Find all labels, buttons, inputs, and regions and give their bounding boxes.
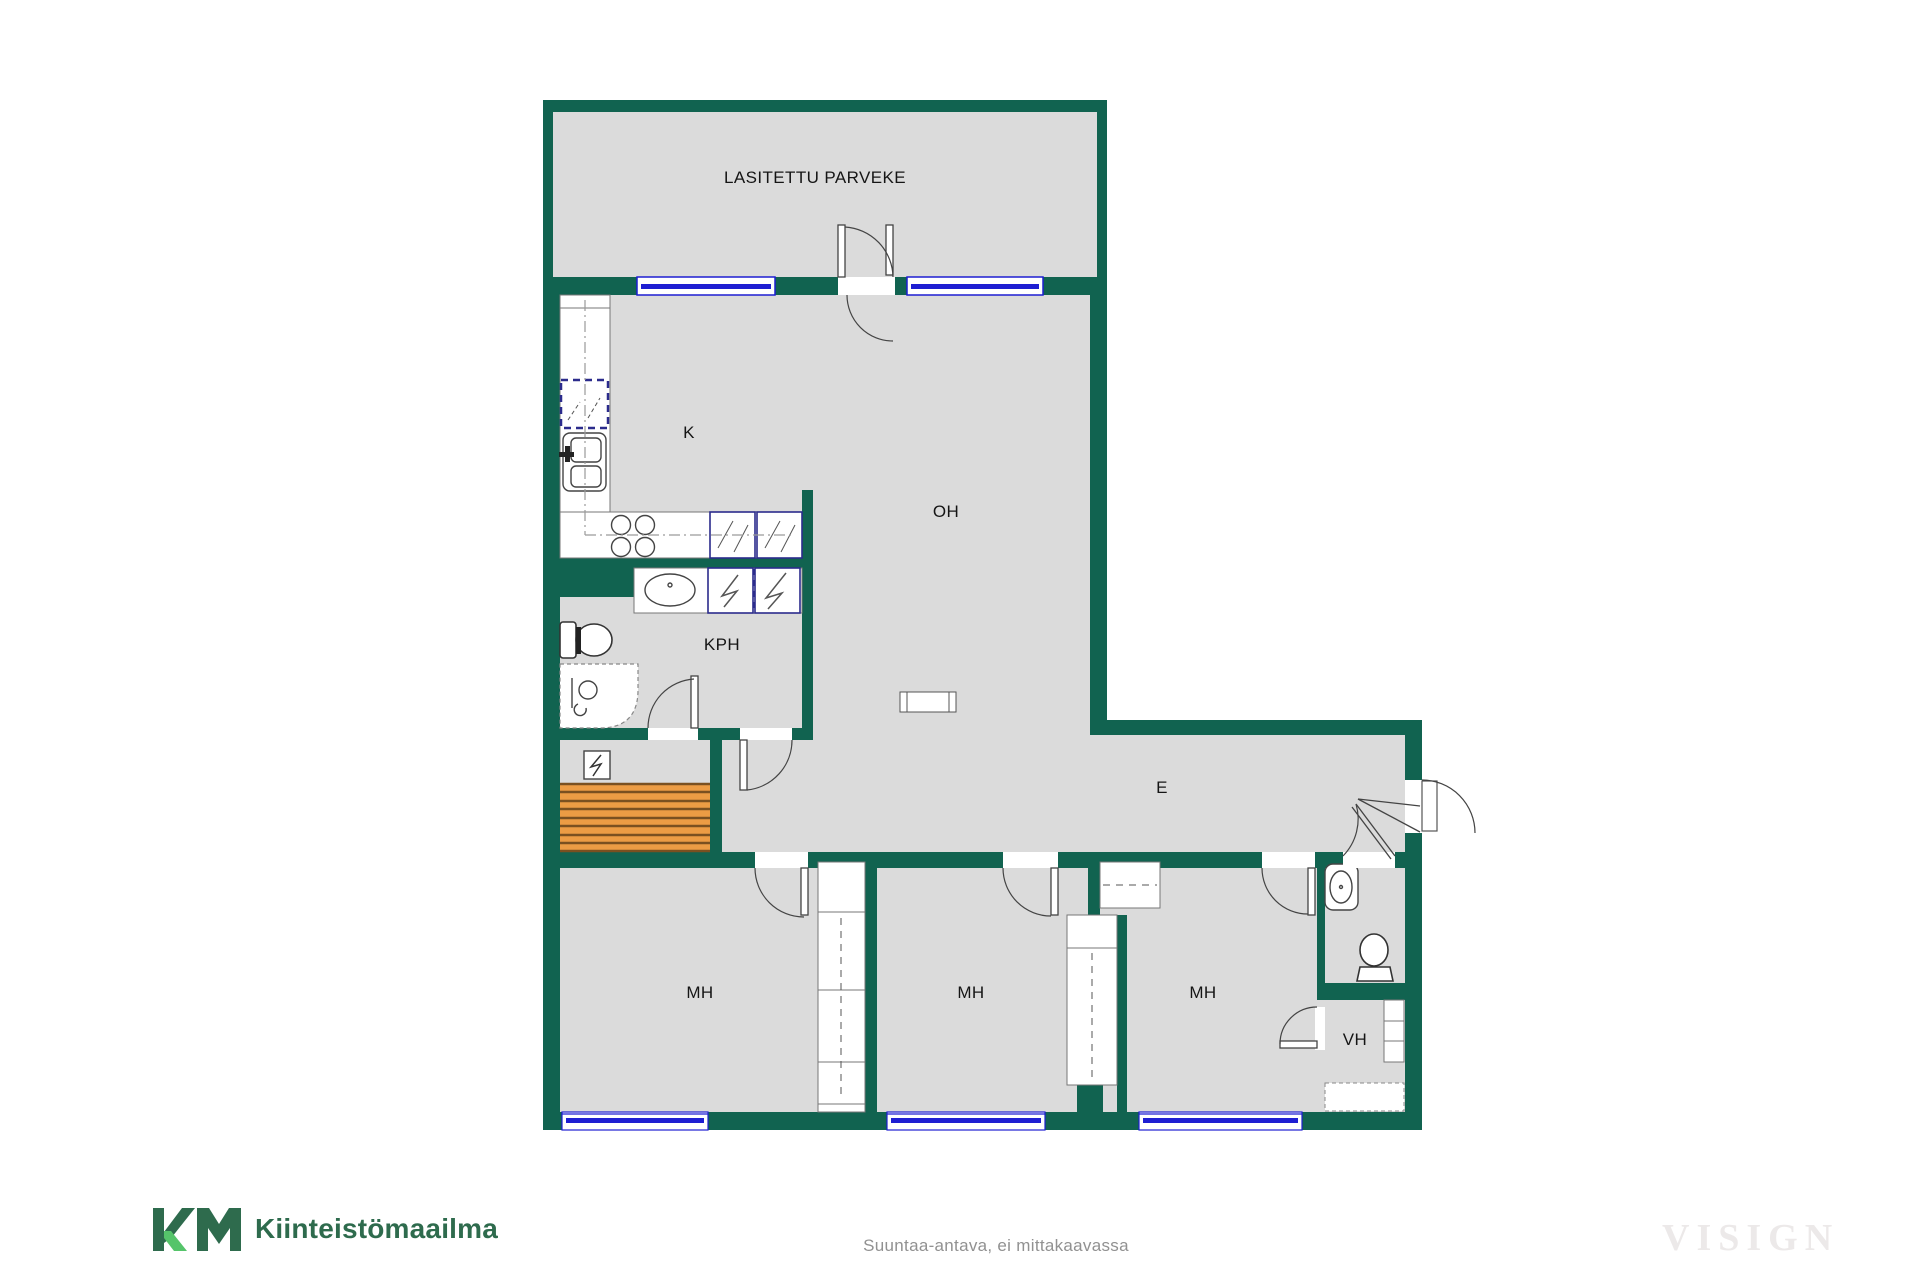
window <box>637 277 775 295</box>
bedroom2-label: MH <box>957 983 984 1003</box>
visign-watermark: VISIGN <box>1662 1216 1839 1260</box>
window <box>1139 1112 1302 1130</box>
entry-label: E <box>1156 778 1168 798</box>
bathroom-label: KPH <box>704 635 740 655</box>
balcony-label: LASITETTU PARVEKE <box>724 168 906 188</box>
window <box>562 1112 708 1130</box>
living-room-label: OH <box>933 502 959 522</box>
bedroom3-label: MH <box>1189 983 1216 1003</box>
logo-text: Kiinteistömaailma <box>255 1213 498 1245</box>
sauna-benches <box>560 783 710 852</box>
floor-plan-drawing <box>0 0 1920 1281</box>
wc-basin-icon <box>1325 864 1358 910</box>
sauna-heater-icon <box>584 751 610 779</box>
walk-in-closet-label: VH <box>1343 1030 1367 1050</box>
floorplan-page: LASITETTU PARVEKE K OH KPH E MH MH MH VH… <box>0 0 1920 1281</box>
kitchen-sink-icon <box>559 433 606 491</box>
balcony-floor <box>553 112 1097 277</box>
km-logo: Kiinteistömaailma <box>145 1203 498 1255</box>
bedroom1-label: MH <box>686 983 713 1003</box>
toilet-icon <box>560 622 612 658</box>
hall-cabinet <box>900 692 956 712</box>
closet-shelf <box>1384 1000 1404 1062</box>
kitchen-label: K <box>683 423 695 443</box>
disclaimer-text: Suuntaa-antava, ei mittakaavassa <box>863 1236 1129 1256</box>
shower-icon <box>560 664 638 728</box>
window <box>907 277 1043 295</box>
upper-cabinet <box>1325 1083 1404 1111</box>
km-monogram-icon <box>145 1203 245 1255</box>
window <box>887 1112 1045 1130</box>
